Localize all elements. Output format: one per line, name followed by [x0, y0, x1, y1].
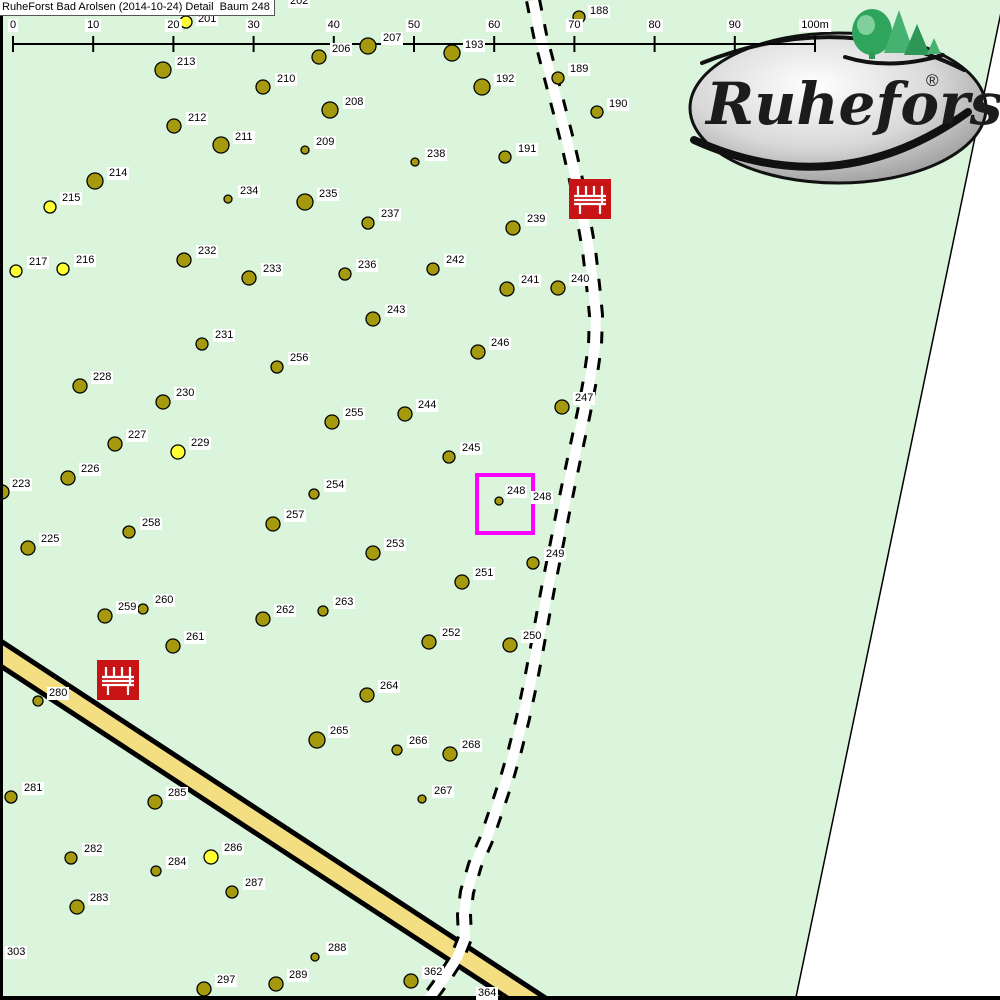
tree-label-253: 253	[384, 538, 406, 551]
tree-label-190: 190	[607, 98, 629, 111]
tree-label-280: 280	[47, 687, 69, 700]
scale-tick-label: 50	[406, 19, 422, 32]
tree-label-257: 257	[284, 509, 306, 522]
tree-label-259: 259	[116, 601, 138, 614]
tree-label-202: 202	[288, 0, 310, 8]
tree-label-215: 215	[60, 192, 82, 205]
tree-label-258: 258	[140, 517, 162, 530]
map-title: RuheForst Bad Arolsen (2014-10-24) Detai…	[0, 0, 275, 16]
tree-label-281: 281	[22, 782, 44, 795]
tree-label-192: 192	[494, 73, 516, 86]
highlight-tree-label: 248	[531, 491, 553, 504]
tree-label-189: 189	[568, 63, 590, 76]
tree-label-285: 285	[166, 787, 188, 800]
tree-label-228: 228	[91, 371, 113, 384]
tree-label-232: 232	[196, 245, 218, 258]
tree-label-266: 266	[407, 735, 429, 748]
tree-label-225: 225	[39, 533, 61, 546]
tree-label-239: 239	[525, 213, 547, 226]
tree-label-261: 261	[184, 631, 206, 644]
tree-label-288: 288	[326, 942, 348, 955]
tree-label-216: 216	[74, 254, 96, 267]
tree-label-210: 210	[275, 73, 297, 86]
tree-label-240: 240	[569, 273, 591, 286]
tree-label-231: 231	[213, 329, 235, 342]
tree-label-249: 249	[544, 548, 566, 561]
tree-label-264: 264	[378, 680, 400, 693]
tree-label-229: 229	[189, 437, 211, 450]
tree-label-226: 226	[79, 463, 101, 476]
tree-label-209: 209	[314, 136, 336, 149]
tree-label-238: 238	[425, 148, 447, 161]
scale-tick-label: 100m	[799, 19, 831, 32]
tree-label-227: 227	[126, 429, 148, 442]
tree-label-213: 213	[175, 56, 197, 69]
tree-label-282: 282	[82, 843, 104, 856]
tree-label-188: 188	[588, 5, 610, 18]
tree-label-230: 230	[174, 387, 196, 400]
scale-tick-label: 40	[326, 19, 342, 32]
tree-label-250: 250	[521, 630, 543, 643]
tree-label-191: 191	[516, 143, 538, 156]
tree-label-303: 303	[5, 946, 27, 959]
tree-label-234: 234	[238, 185, 260, 198]
tree-label-217: 217	[27, 256, 49, 269]
tree-label-236: 236	[356, 259, 378, 272]
tree-label-233: 233	[261, 263, 283, 276]
tree-label-237: 237	[379, 208, 401, 221]
scale-tick-label: 70	[566, 19, 582, 32]
tree-label-265: 265	[328, 725, 350, 738]
tree-label-251: 251	[473, 567, 495, 580]
tree-label-268: 268	[460, 739, 482, 752]
tree-label-364: 364	[476, 987, 498, 1000]
tree-label-260: 260	[153, 594, 175, 607]
tree-label-246: 246	[489, 337, 511, 350]
tree-label-207: 207	[381, 32, 403, 45]
highlight-square-tree-248	[475, 473, 535, 535]
tree-label-283: 283	[88, 892, 110, 905]
tree-label-263: 263	[333, 596, 355, 609]
tree-label-245: 245	[460, 442, 482, 455]
tree-label-214: 214	[107, 167, 129, 180]
tree-label-211: 211	[233, 131, 255, 144]
tree-label-287: 287	[243, 877, 265, 890]
tree-label-255: 255	[343, 407, 365, 420]
tree-label-284: 284	[166, 856, 188, 869]
tree-label-247: 247	[573, 392, 595, 405]
tree-label-241: 241	[519, 274, 541, 287]
scale-tick-label: 90	[727, 19, 743, 32]
tree-label-206: 206	[330, 43, 352, 56]
scale-tick-label: 20	[165, 19, 181, 32]
scale-tick-label: 0	[8, 19, 18, 32]
tree-label-286: 286	[222, 842, 244, 855]
tree-label-267: 267	[432, 785, 454, 798]
scale-tick-label: 30	[245, 19, 261, 32]
tree-label-252: 252	[440, 627, 462, 640]
scale-tick-label: 80	[646, 19, 662, 32]
map-stage: Ruheforst ® 0102030405060708090100m18820…	[0, 0, 1000, 1000]
scale-tick-label: 60	[486, 19, 502, 32]
tree-label-262: 262	[274, 604, 296, 617]
tree-label-223: 223	[10, 478, 32, 491]
scale-tick-label: 10	[85, 19, 101, 32]
tree-label-193: 193	[463, 39, 485, 52]
tree-label-254: 254	[324, 479, 346, 492]
tree-label-244: 244	[416, 399, 438, 412]
tree-label-256: 256	[288, 352, 310, 365]
tree-label-242: 242	[444, 254, 466, 267]
tree-label-289: 289	[287, 969, 309, 982]
tree-label-212: 212	[186, 112, 208, 125]
tree-label-243: 243	[385, 304, 407, 317]
tree-label-297: 297	[215, 974, 237, 987]
tree-label-362: 362	[422, 966, 444, 979]
tree-label-208: 208	[343, 96, 365, 109]
tree-label-235: 235	[317, 188, 339, 201]
